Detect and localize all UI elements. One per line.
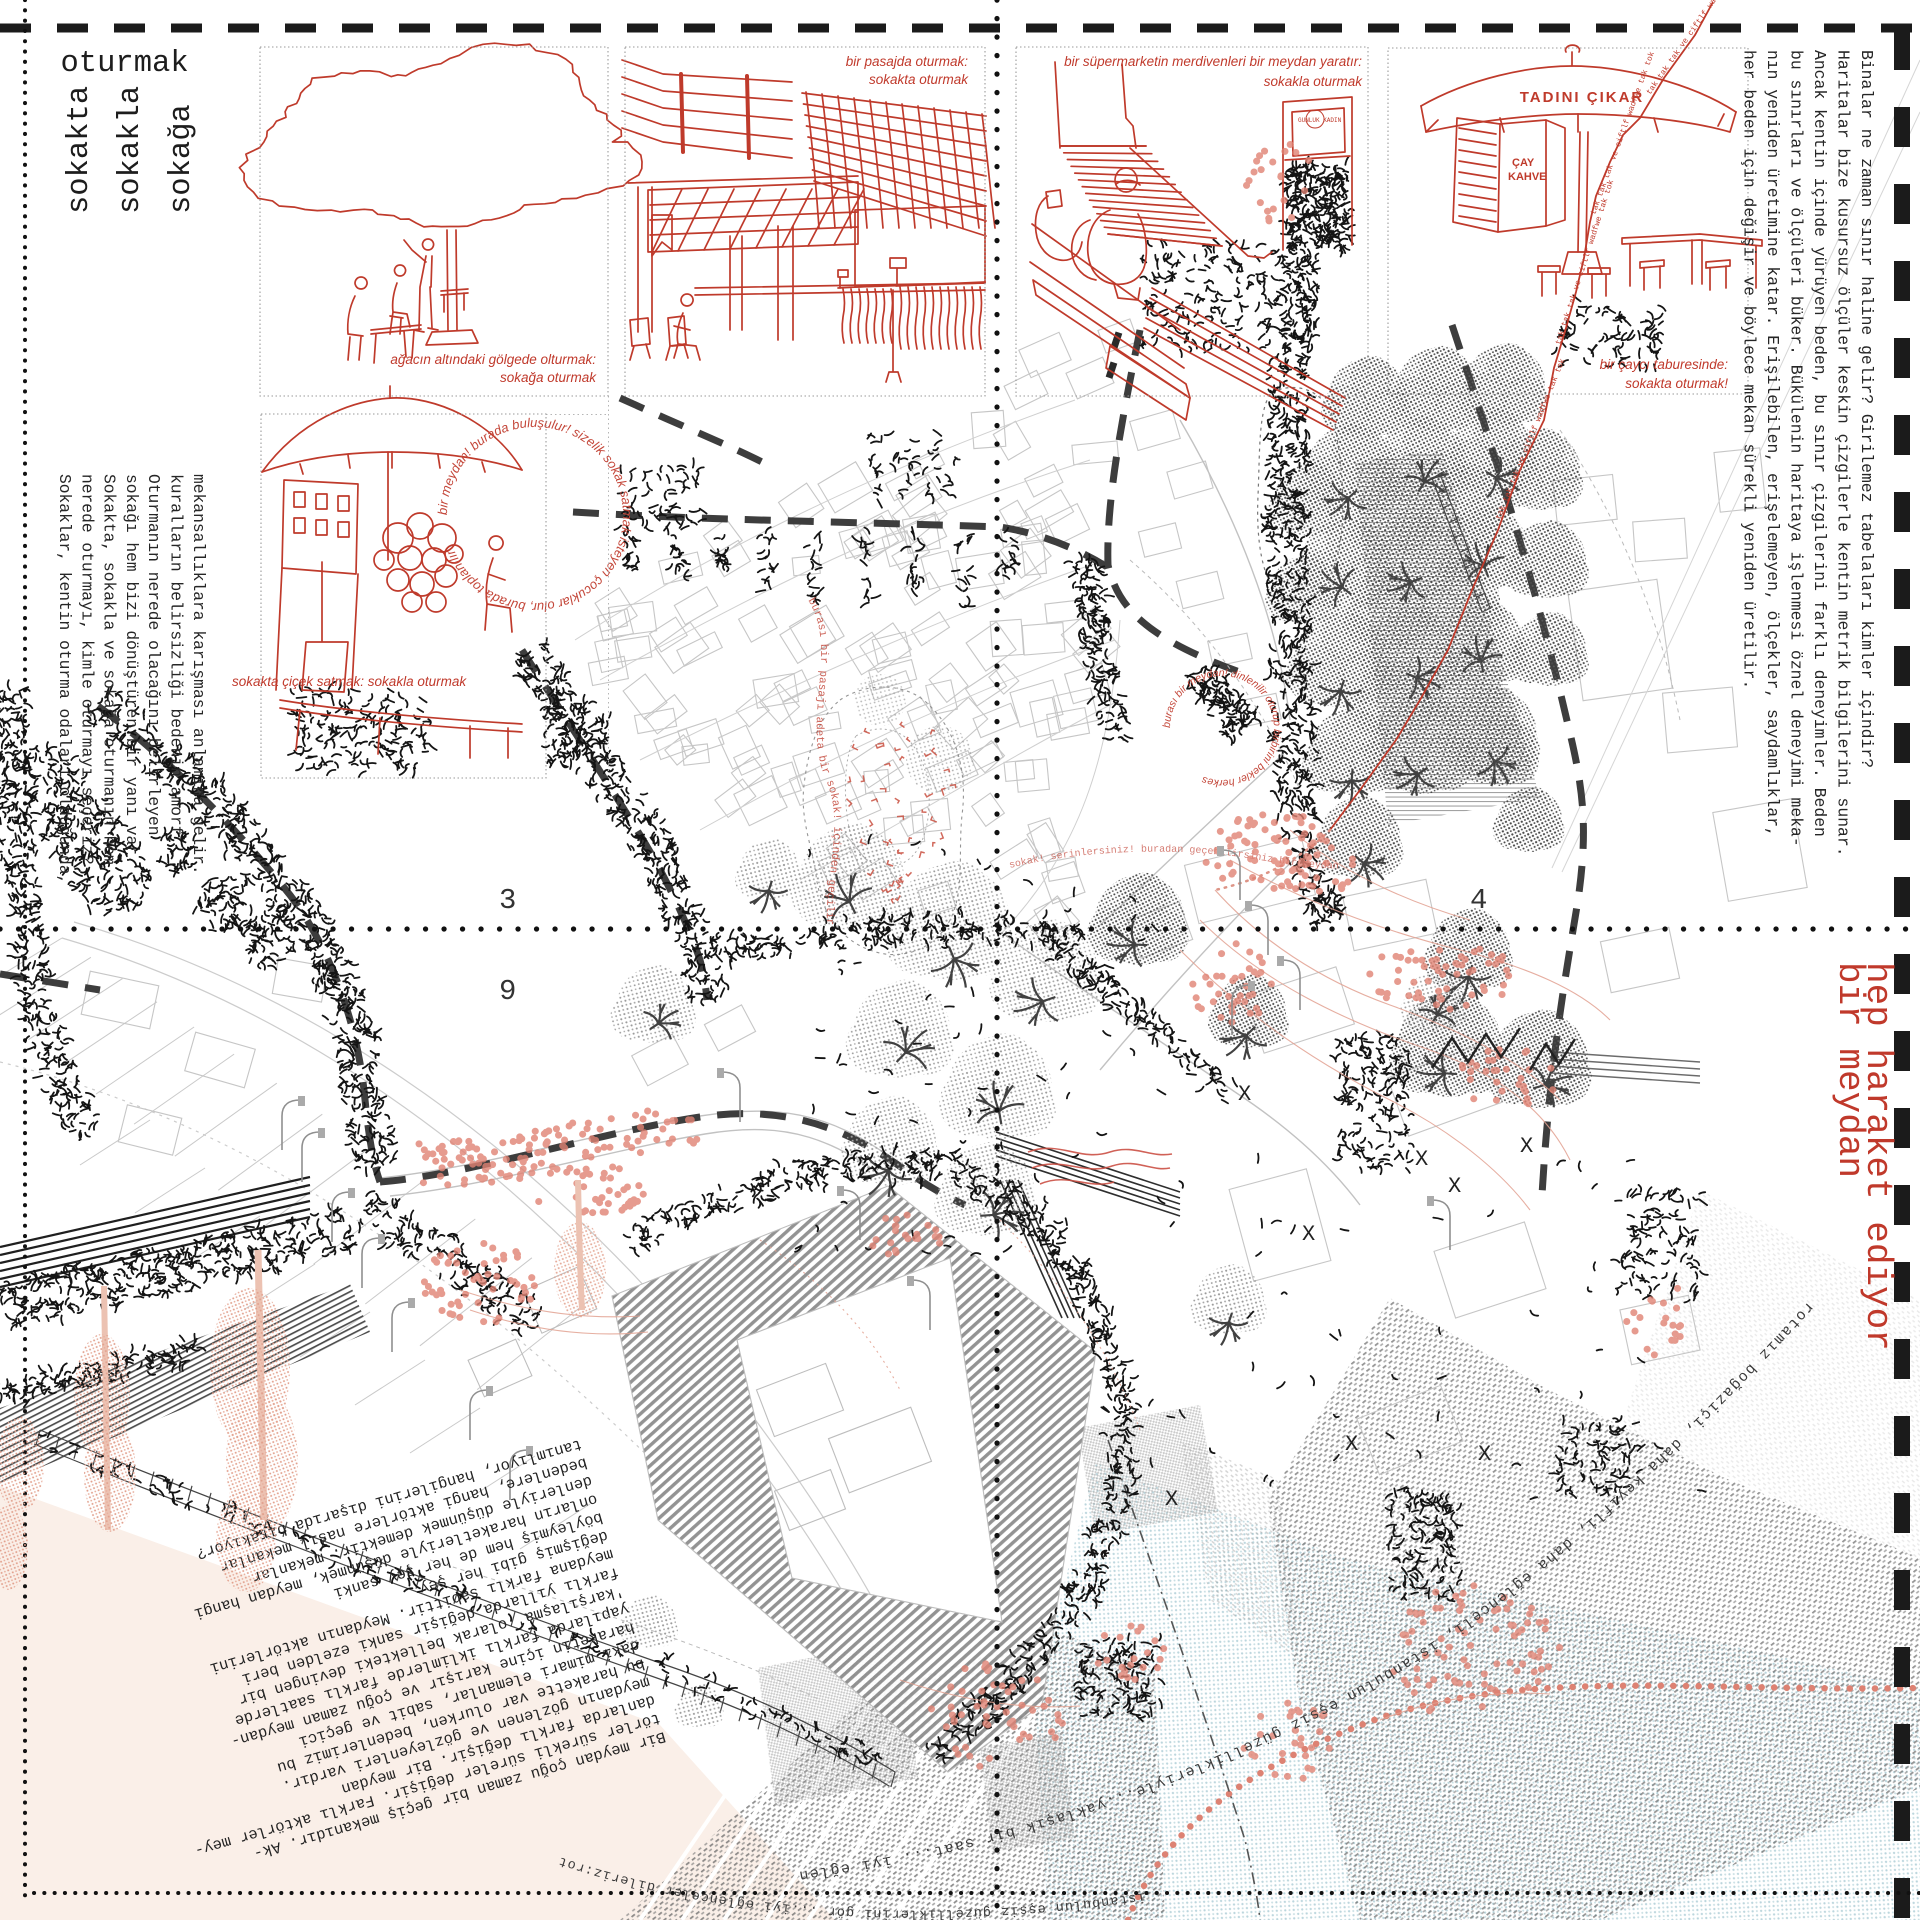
svg-text:sokakla: sokakla [114,86,148,214]
svg-text:KAHVE: KAHVE [1508,171,1547,183]
svg-text:nerede oturmayı, kimle oturmay: nerede oturmayı, kimle oturmayı seçeriz? [77,474,96,865]
svg-text:X: X [1238,1082,1251,1107]
svg-text:9: 9 [499,975,516,1008]
svg-text:oturmak: oturmak [61,47,189,81]
svg-text:GUNLUK KADIN: GUNLUK KADIN [1298,117,1342,124]
svg-text:X: X [1478,1442,1491,1467]
svg-text:ÇAY: ÇAY [1512,157,1535,169]
svg-text:sokakta oturmak: sokakta oturmak [869,72,969,87]
svg-text:her beden için değişir ve böyl: her beden için değişir ve böylece mekan … [1740,50,1759,689]
svg-text:X: X [1520,1134,1533,1159]
svg-text:Haritalar bize kusursuz ölçüle: Haritalar bize kusursuz ölçüler keskin ç… [1834,50,1853,857]
svg-text:Ancak kentin içinde yürüyen be: Ancak kentin içinde yürüyen beden, bu sı… [1810,50,1829,837]
svg-text:X: X [1165,1487,1178,1512]
svg-text:X: X [1340,1087,1353,1112]
svg-text:mekansallıklara karışması anla: mekansallıklara karışması anlamına gelir… [189,474,208,875]
svg-text:bir çaycı taburesinde:: bir çaycı taburesinde: [1600,357,1729,372]
svg-text:4: 4 [1470,884,1487,917]
svg-text:bir pasajda oturmak:: bir pasajda oturmak: [846,54,969,69]
svg-text:X: X [1345,1432,1358,1457]
svg-text:sokağı hem bizi dönüştüren bir: sokağı hem bizi dönüştüren bir yanı var. [122,474,141,865]
svg-text:nın yeniden üretimine katar. E: nın yeniden üretimine katar. Erişilebile… [1763,50,1782,837]
svg-text:Sokakta, sokakla ve sokağa otu: Sokakta, sokakla ve sokağa oturmanın hem [100,474,119,865]
svg-text:sokağa: sokağa [165,104,199,214]
svg-text:sokağa oturmak: sokağa oturmak [500,370,597,385]
svg-text:X: X [1302,1222,1315,1247]
svg-text:sokakta çiçek satmak: sokakla: sokakta çiçek satmak: sokakla oturmak [232,674,467,689]
svg-text:bir süpermarketin merdivenleri: bir süpermarketin merdivenleri bir meyda… [1064,54,1362,69]
svg-text:Oturmanın nerede olacağını bel: Oturmanın nerede olacağını belirleyen [144,474,163,836]
svg-text:bu sınırları ve ölçüleri büker: bu sınırları ve ölçüleri büker. Büküleni… [1787,50,1806,847]
svg-text:Binalar ne zaman sınır haline: Binalar ne zaman sınır haline gelir? Gir… [1857,50,1876,768]
svg-text:X: X [1415,1147,1428,1172]
svg-text:TADINI ÇIKAR: TADINI ÇIKAR [1520,89,1645,106]
svg-text:ağacın altındaki gölgede oltur: ağacın altındaki gölgede olturmak: [390,352,596,367]
svg-text:Sokaklar, kentin oturma odalar: Sokaklar, kentin oturma odaları olduğund… [55,474,74,884]
svg-text:3: 3 [499,884,516,917]
svg-text:X: X [1448,1174,1461,1199]
svg-text:sokakla oturmak: sokakla oturmak [1264,74,1364,89]
svg-text:sokakta: sokakta [63,86,97,214]
svg-text:hep haraket ediyor: hep haraket ediyor [1857,962,1898,1351]
svg-text:sokakta oturmak!: sokakta oturmak! [1625,376,1728,391]
svg-text:kuralların belirsizliği bedeni: kuralların belirsizliği bedenin amorf [167,474,186,836]
